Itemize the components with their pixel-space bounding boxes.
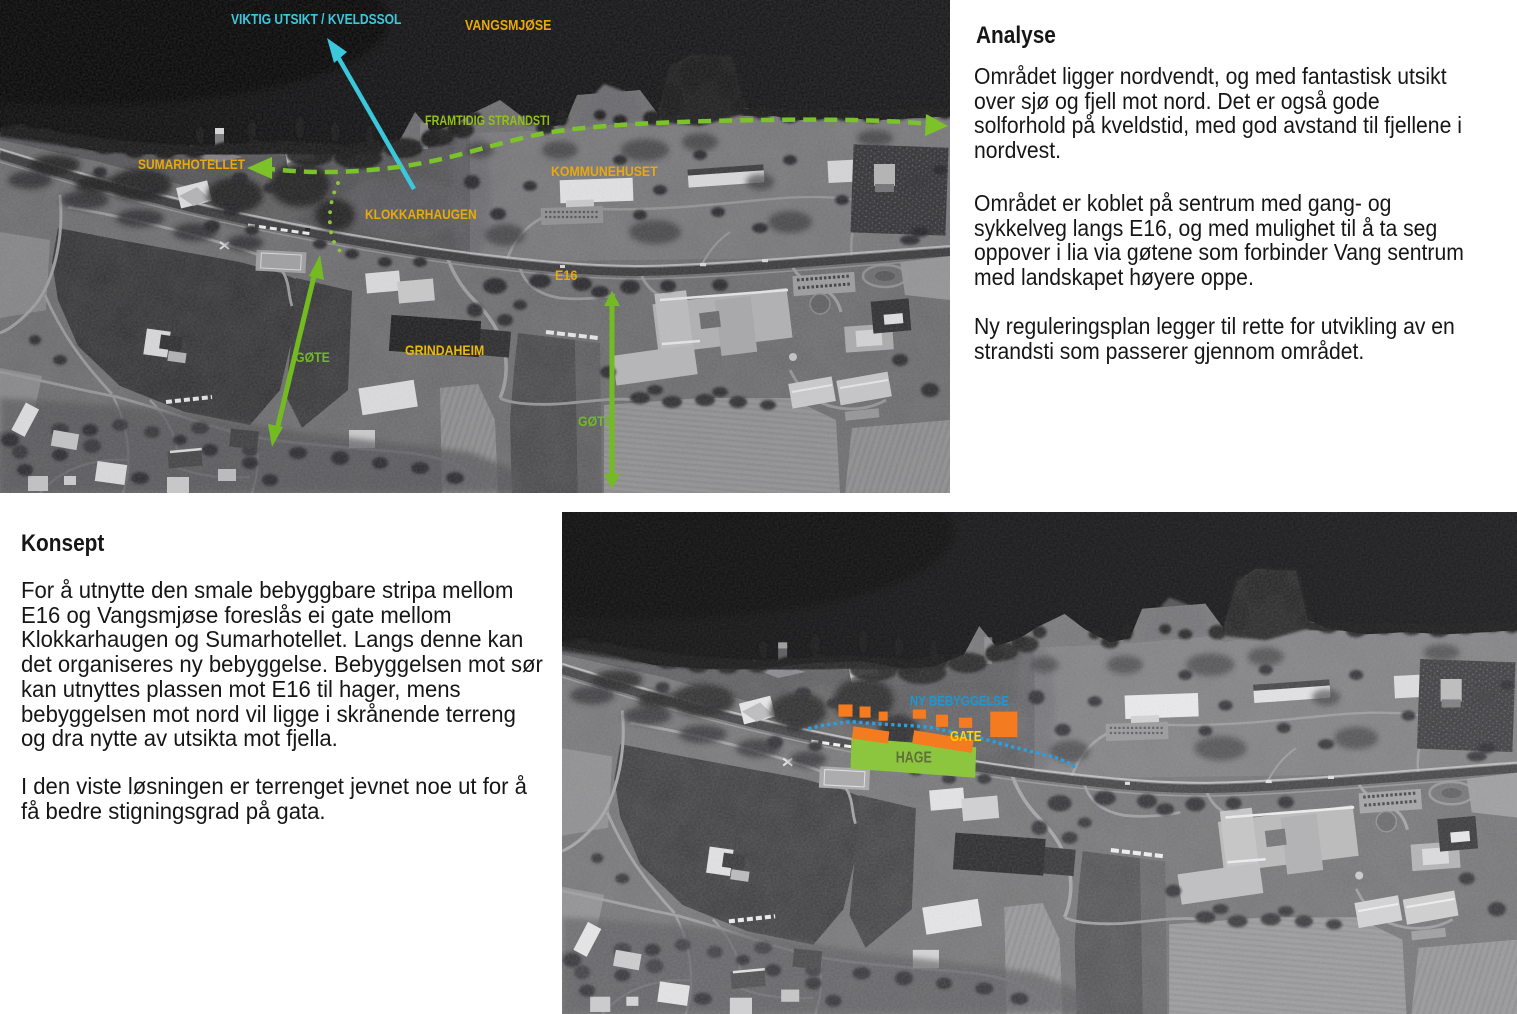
- svg-text:NY BEBYGGELSE: NY BEBYGGELSE: [910, 692, 1009, 708]
- svg-text:SUMARHOTELLET: SUMARHOTELLET: [138, 156, 245, 172]
- svg-text:KLOKKARHAUGEN: KLOKKARHAUGEN: [365, 206, 477, 222]
- svg-text:KOMMUNEHUSET: KOMMUNEHUSET: [551, 163, 658, 179]
- svg-text:VANGSMJØSE: VANGSMJØSE: [465, 17, 551, 33]
- svg-text:E16: E16: [555, 267, 577, 283]
- svg-text:VIKTIG UTSIKT / KVELDSSOL: VIKTIG UTSIKT / KVELDSSOL: [231, 11, 401, 27]
- svg-text:GRINDAHEIM: GRINDAHEIM: [405, 342, 484, 358]
- svg-text:FRAMTIDIG STRANDSTI: FRAMTIDIG STRANDSTI: [425, 113, 550, 128]
- svg-text:HAGE: HAGE: [896, 748, 932, 766]
- svg-text:GØTE: GØTE: [295, 349, 330, 365]
- svg-text:GATE: GATE: [950, 728, 982, 745]
- svg-text:GØTE: GØTE: [578, 413, 613, 429]
